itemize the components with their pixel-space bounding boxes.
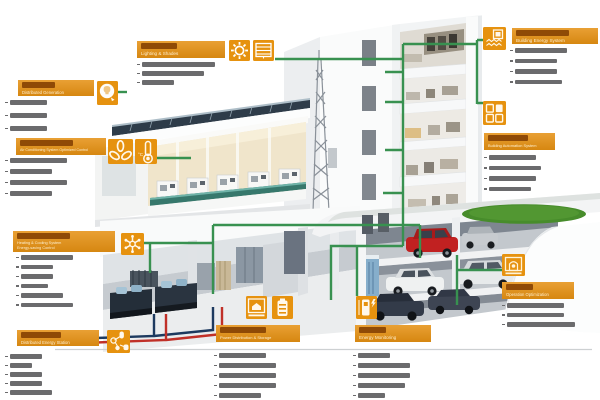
svg-text:°C: °C xyxy=(138,152,144,157)
